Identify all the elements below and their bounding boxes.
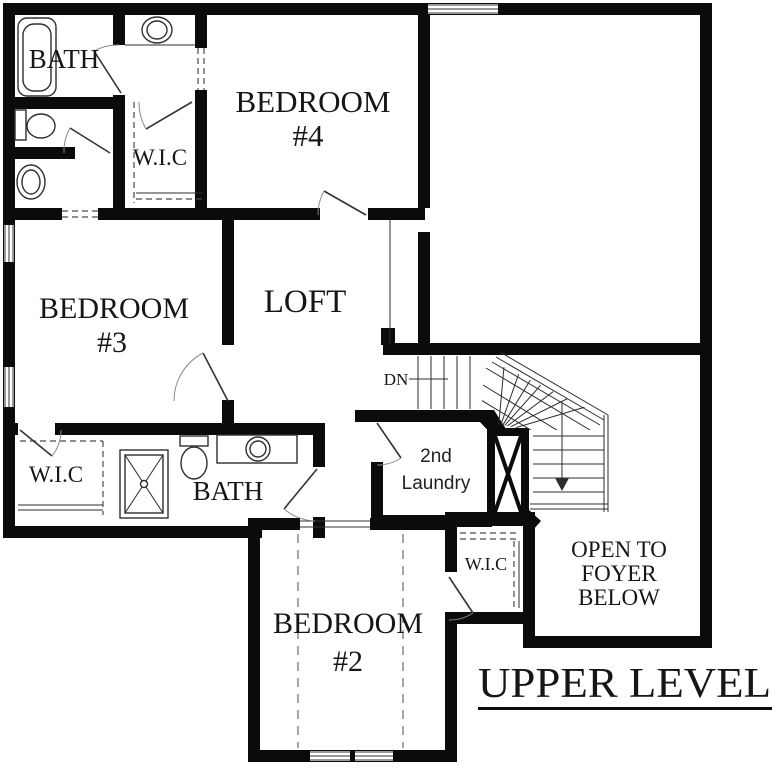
page-title: UPPER LEVEL	[478, 661, 771, 707]
laundry-sink-icon	[17, 165, 45, 199]
room-label-bedroom4-line1: BEDROOM	[235, 84, 390, 119]
room-label-wic-left: W.I.C	[29, 462, 83, 487]
cased-opening-mid-wall	[62, 211, 98, 217]
stairs-upper-treads	[409, 356, 470, 409]
room-label-bedroom4-line2: #4	[293, 118, 325, 153]
room-label-bath-upper: BATH	[29, 44, 100, 74]
room-label-bedroom3-line2: #3	[97, 326, 127, 359]
toilet-icon	[15, 110, 55, 140]
room-label-wic-upper: W.I.C	[133, 145, 187, 170]
floor-plan-page: BATH W.I.C BEDROOM #4 BEDROOM #3 LOFT DN…	[0, 0, 779, 768]
window-top	[428, 4, 498, 14]
stairs-dn-label: DN	[384, 370, 409, 389]
shower-icon	[120, 450, 168, 518]
bedroom2-ceiling-break-lines	[298, 534, 403, 748]
room-label-foyer-line2: FOYER	[581, 561, 657, 586]
stairs-lower-treads	[530, 436, 608, 509]
door-wic-upper	[139, 102, 192, 129]
door-bedroom3	[174, 353, 228, 401]
room-label-laundry-line1: 2nd	[420, 446, 452, 467]
cased-opening-hall-bedroom2	[300, 521, 370, 527]
window-left-2	[4, 367, 14, 407]
room-label-loft: LOFT	[264, 284, 347, 320]
room-label-bedroom2-line2: #2	[333, 645, 363, 678]
vanity-sink-icon	[125, 17, 195, 45]
stairs-winder-treads	[481, 356, 602, 433]
stair-shaft-icon	[487, 428, 529, 520]
door-laundry	[377, 423, 401, 465]
room-label-bedroom2-line1: BEDROOM	[273, 607, 423, 640]
room-label-foyer-line3: BELOW	[578, 585, 660, 610]
room-label-bedroom3-line1: BEDROOM	[39, 292, 189, 325]
floor-plan-drawing: BATH W.I.C BEDROOM #4 BEDROOM #3 LOFT DN…	[0, 0, 779, 768]
room-label-wic-bedroom2: W.I.C	[465, 554, 507, 574]
window-left-1	[4, 225, 14, 262]
door-wic-left	[20, 430, 61, 456]
room-label-laundry-line2: Laundry	[402, 473, 471, 494]
door-bath-lower	[284, 469, 317, 521]
window-bedroom2-1	[310, 751, 350, 761]
room-label-foyer-line1: OPEN TO	[571, 537, 667, 562]
page-title-underline	[478, 707, 772, 710]
window-bedroom2-2	[355, 751, 393, 761]
toilet-icon-2	[180, 436, 208, 479]
door-bedroom4	[318, 191, 366, 215]
room-label-bath-lower: BATH	[193, 476, 264, 506]
cased-opening-bedroom4	[198, 48, 204, 90]
vanity-sink-icon-2	[217, 435, 297, 463]
